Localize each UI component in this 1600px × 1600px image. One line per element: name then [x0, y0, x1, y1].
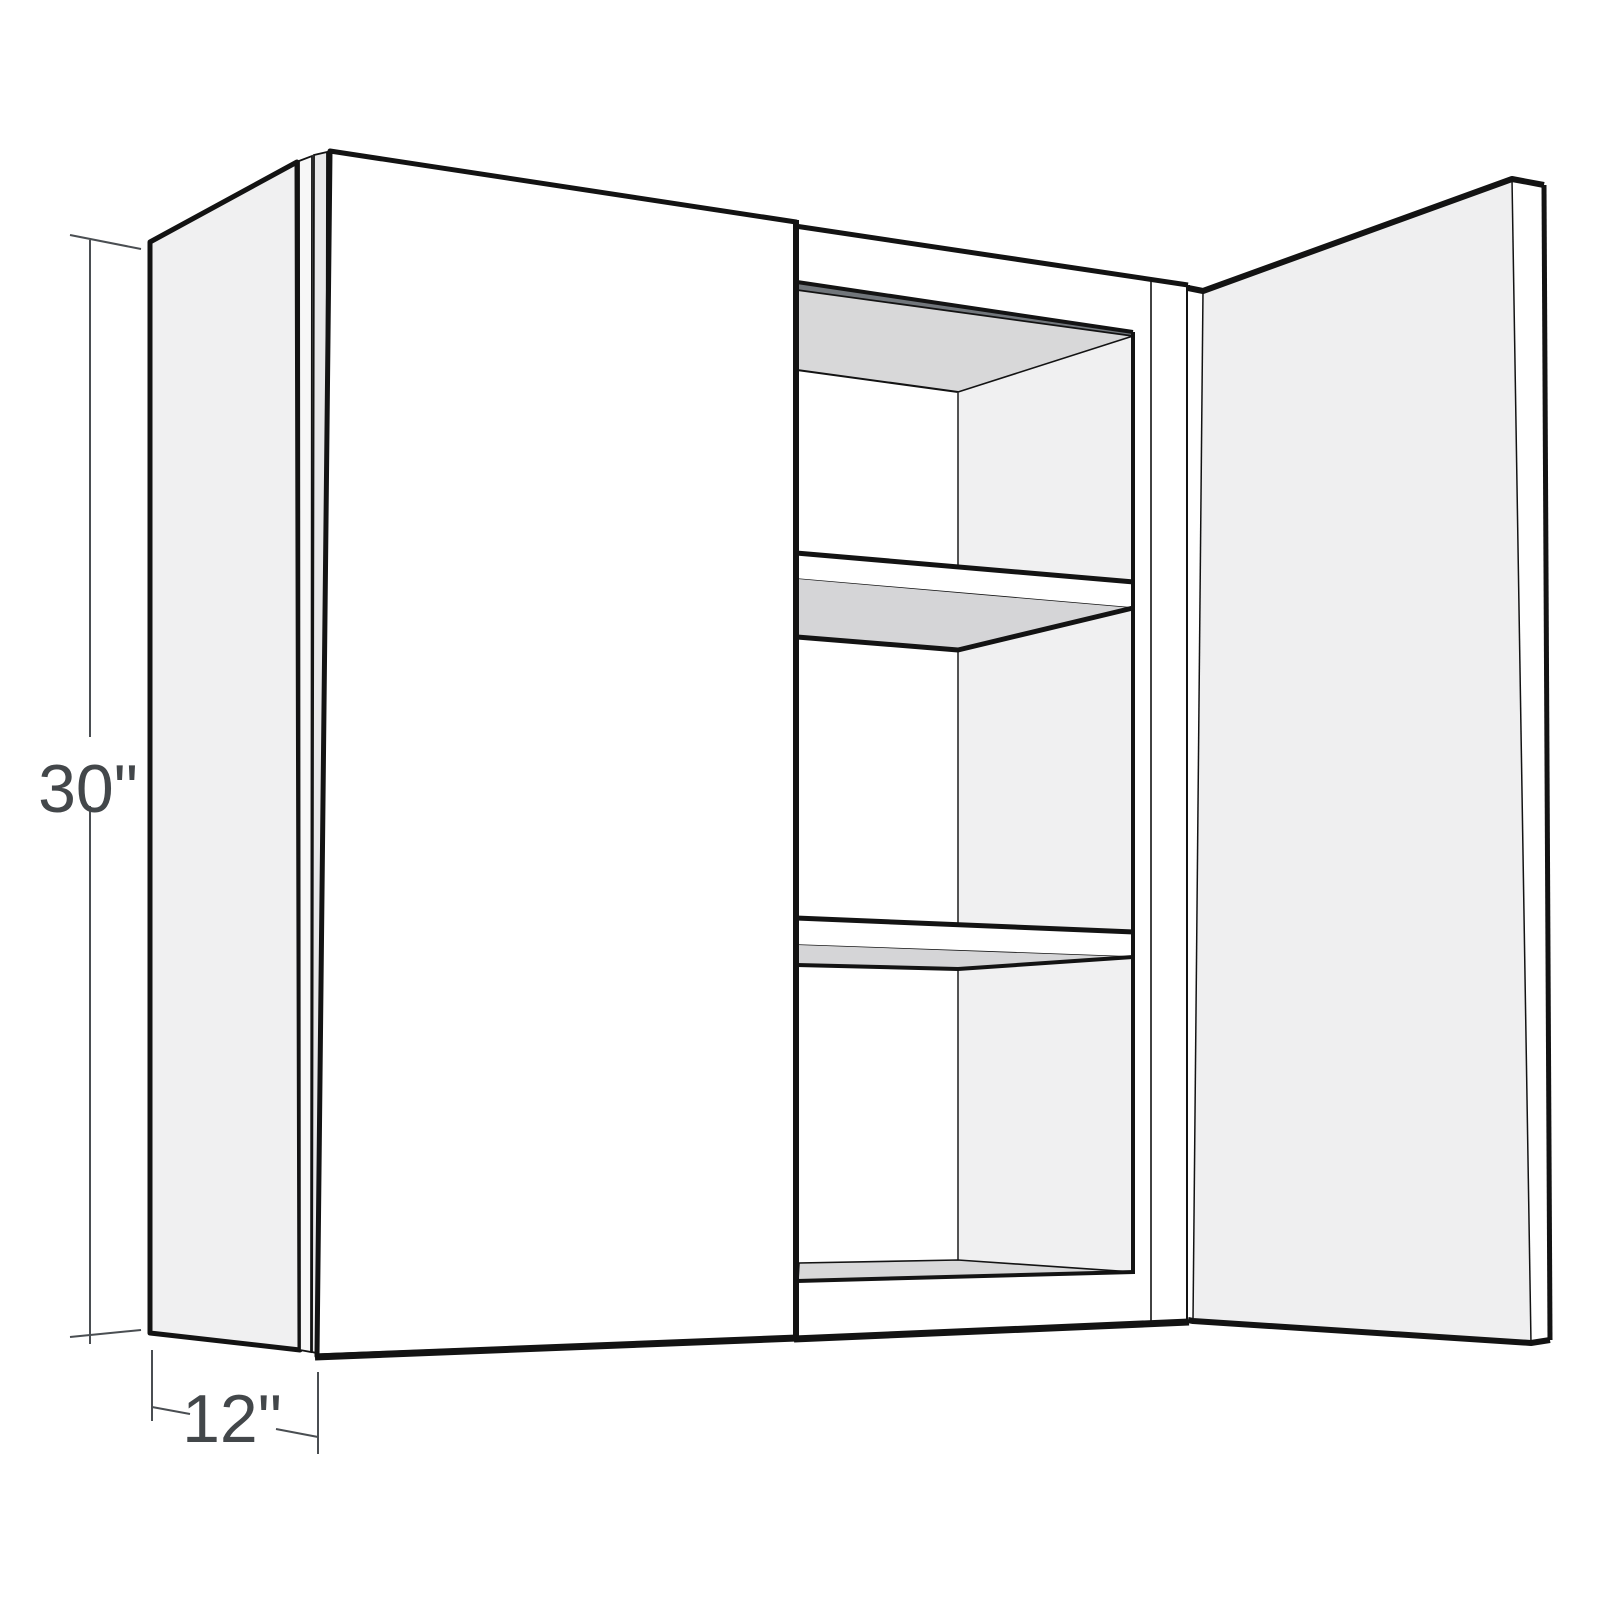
cabinet-left-side-panel	[150, 152, 327, 1355]
interior-right-wall	[958, 336, 1133, 1273]
cabinet-diagram-page: 30" 12"	[0, 0, 1600, 1600]
right-door-open	[1188, 179, 1550, 1343]
cabinet-3d-illustration: 30" 12"	[0, 0, 1600, 1600]
height-dimension-top-tick	[70, 235, 141, 249]
depth-dimension-right-tick	[276, 1429, 318, 1437]
interior-back-wall	[796, 366, 958, 1264]
height-dimension-label: 30"	[38, 751, 138, 827]
panel-front-edge-strip	[299, 156, 312, 1352]
left-door	[315, 151, 797, 1357]
right-door-inner-face	[1193, 179, 1531, 1343]
depth-dimension-label: 12"	[182, 1381, 282, 1457]
height-dimension-bottom-tick	[70, 1330, 141, 1337]
cabinet-interior	[796, 280, 1134, 1281]
